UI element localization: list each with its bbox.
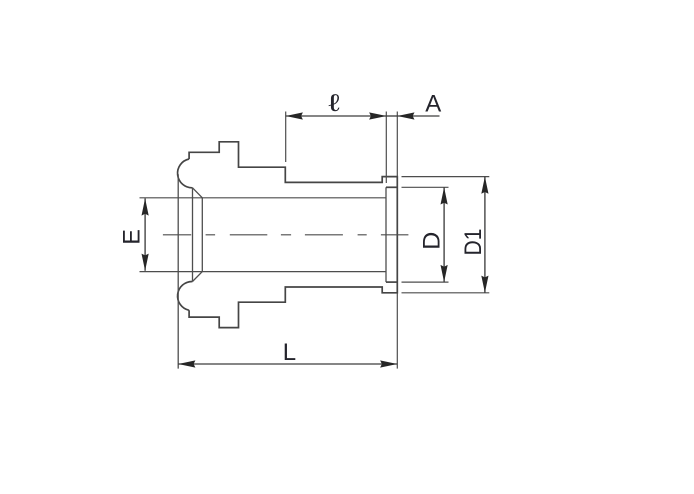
- svg-text:E: E: [119, 229, 146, 245]
- svg-text:ℓ: ℓ: [329, 90, 341, 117]
- svg-text:A: A: [425, 90, 441, 117]
- svg-text:D1: D1: [460, 229, 487, 256]
- svg-text:D: D: [418, 232, 445, 250]
- svg-text:L: L: [283, 339, 296, 366]
